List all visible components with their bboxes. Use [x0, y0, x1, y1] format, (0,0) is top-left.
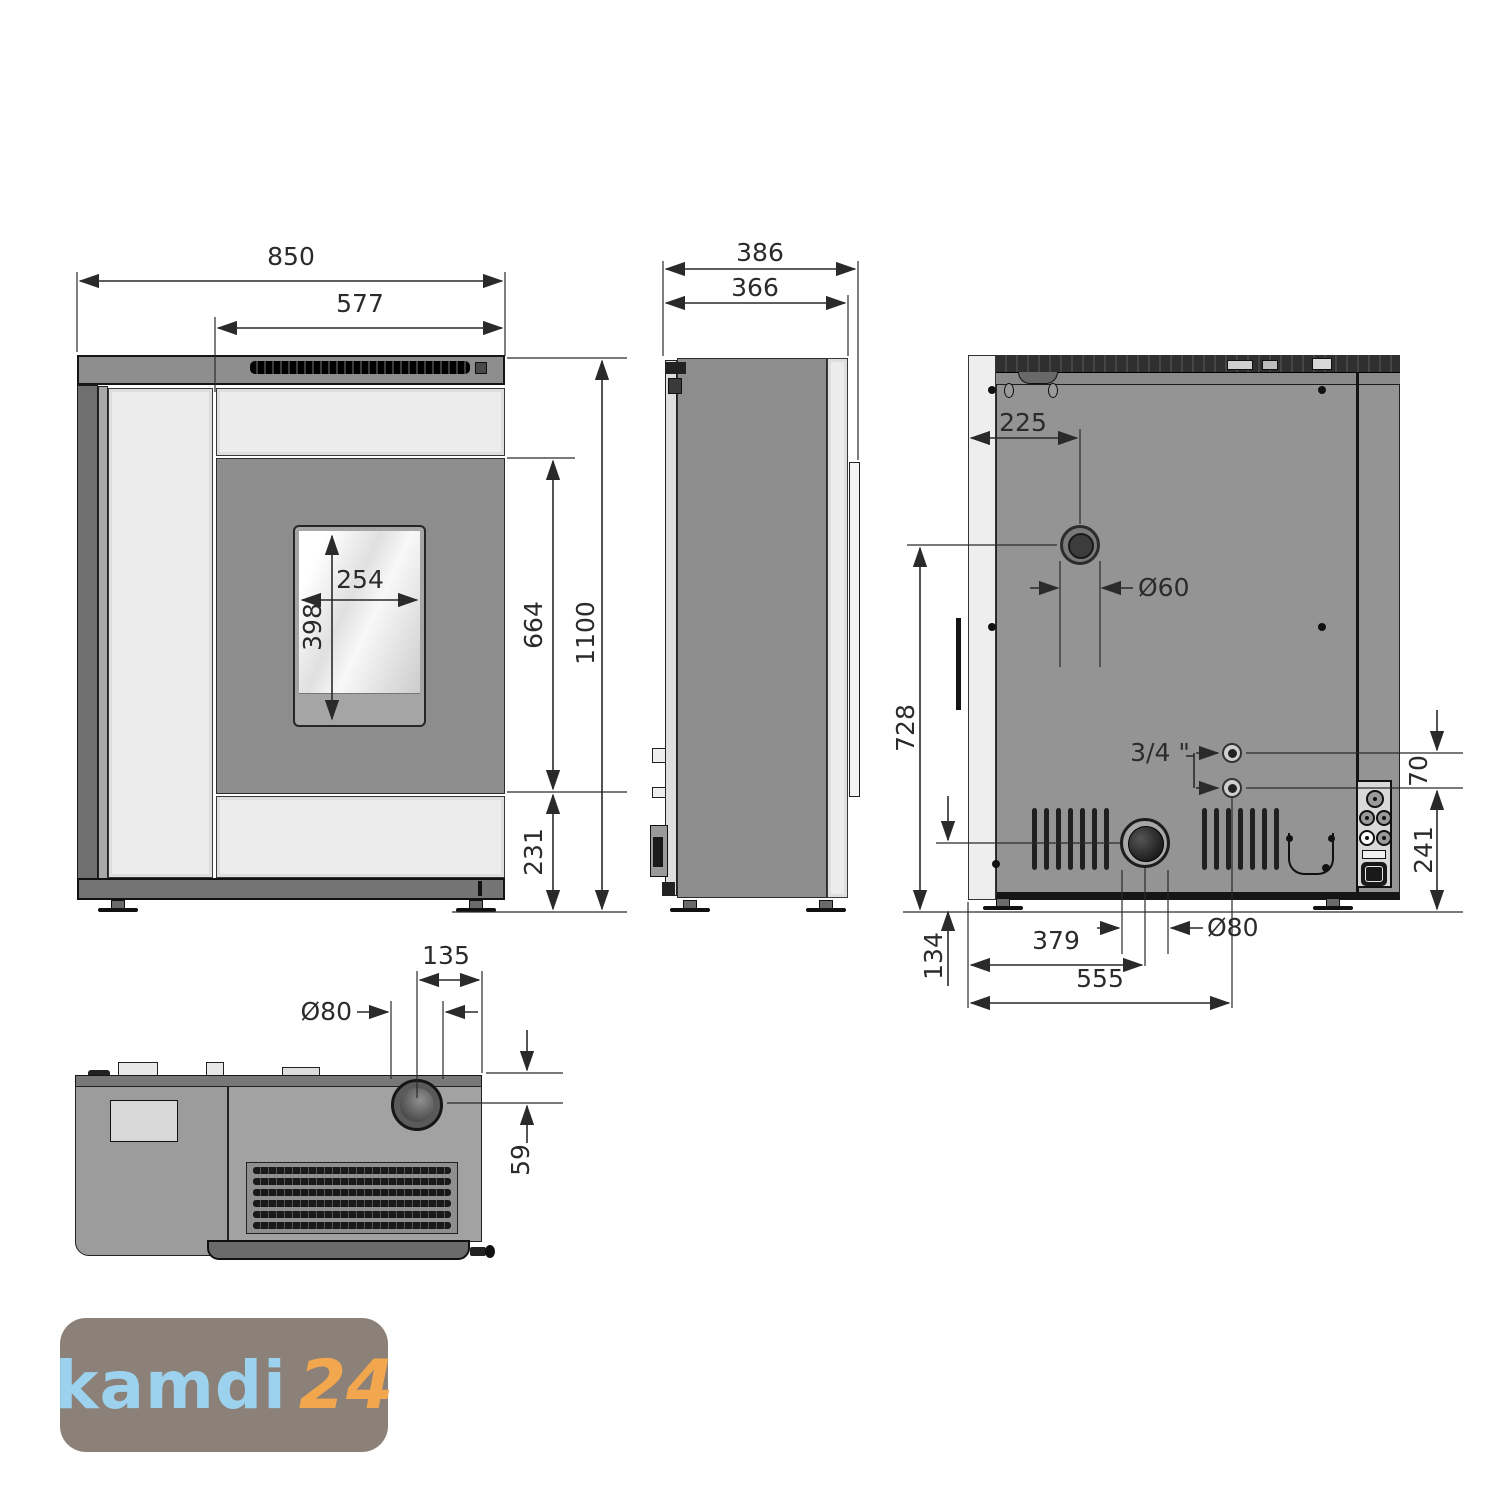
dim-front-base-height: 231 — [520, 802, 548, 902]
logo-brand-text: kamdi — [55, 1347, 287, 1424]
kamdi24-logo: kamdi 24 — [60, 1318, 388, 1452]
logo-number-text: 24 — [299, 1346, 394, 1425]
dim-front-total-height: 1100 — [572, 578, 600, 688]
dim-rear-flue-diameter: Ø80 — [1207, 914, 1307, 942]
technical-drawing-canvas: 850 577 254 398 664 1100 231 386 366 225… — [0, 0, 1500, 1500]
dim-rear-flue-center-height: 728 — [892, 673, 920, 783]
dim-top-flue-rear-offset: 59 — [507, 1110, 535, 1210]
dim-side-body-depth: 366 — [705, 274, 805, 302]
dim-rear-pipe-offset: 555 — [1050, 965, 1150, 993]
dim-rear-flue-top-diameter: Ø60 — [1138, 574, 1238, 602]
dim-rear-flue-offset: 379 — [1006, 927, 1106, 955]
dim-front-door-height: 664 — [520, 575, 548, 675]
dim-rear-connection-height: 241 — [1410, 795, 1438, 905]
dim-rear-flue-bottom-height: 134 — [920, 906, 948, 1006]
dim-rear-flue-top-offset: 225 — [973, 409, 1073, 437]
dim-front-top-width: 577 — [310, 290, 410, 318]
dim-front-total-width: 850 — [241, 243, 341, 271]
dim-top-flue-diameter: Ø80 — [252, 998, 352, 1026]
dimension-lines-layer — [0, 0, 1500, 1500]
dim-top-flue-side-offset: 135 — [396, 942, 496, 970]
dim-rear-pipe-thread: 3/4 " — [1110, 739, 1210, 767]
dim-side-total-depth: 386 — [710, 239, 810, 267]
dim-front-window-height: 398 — [299, 577, 327, 677]
